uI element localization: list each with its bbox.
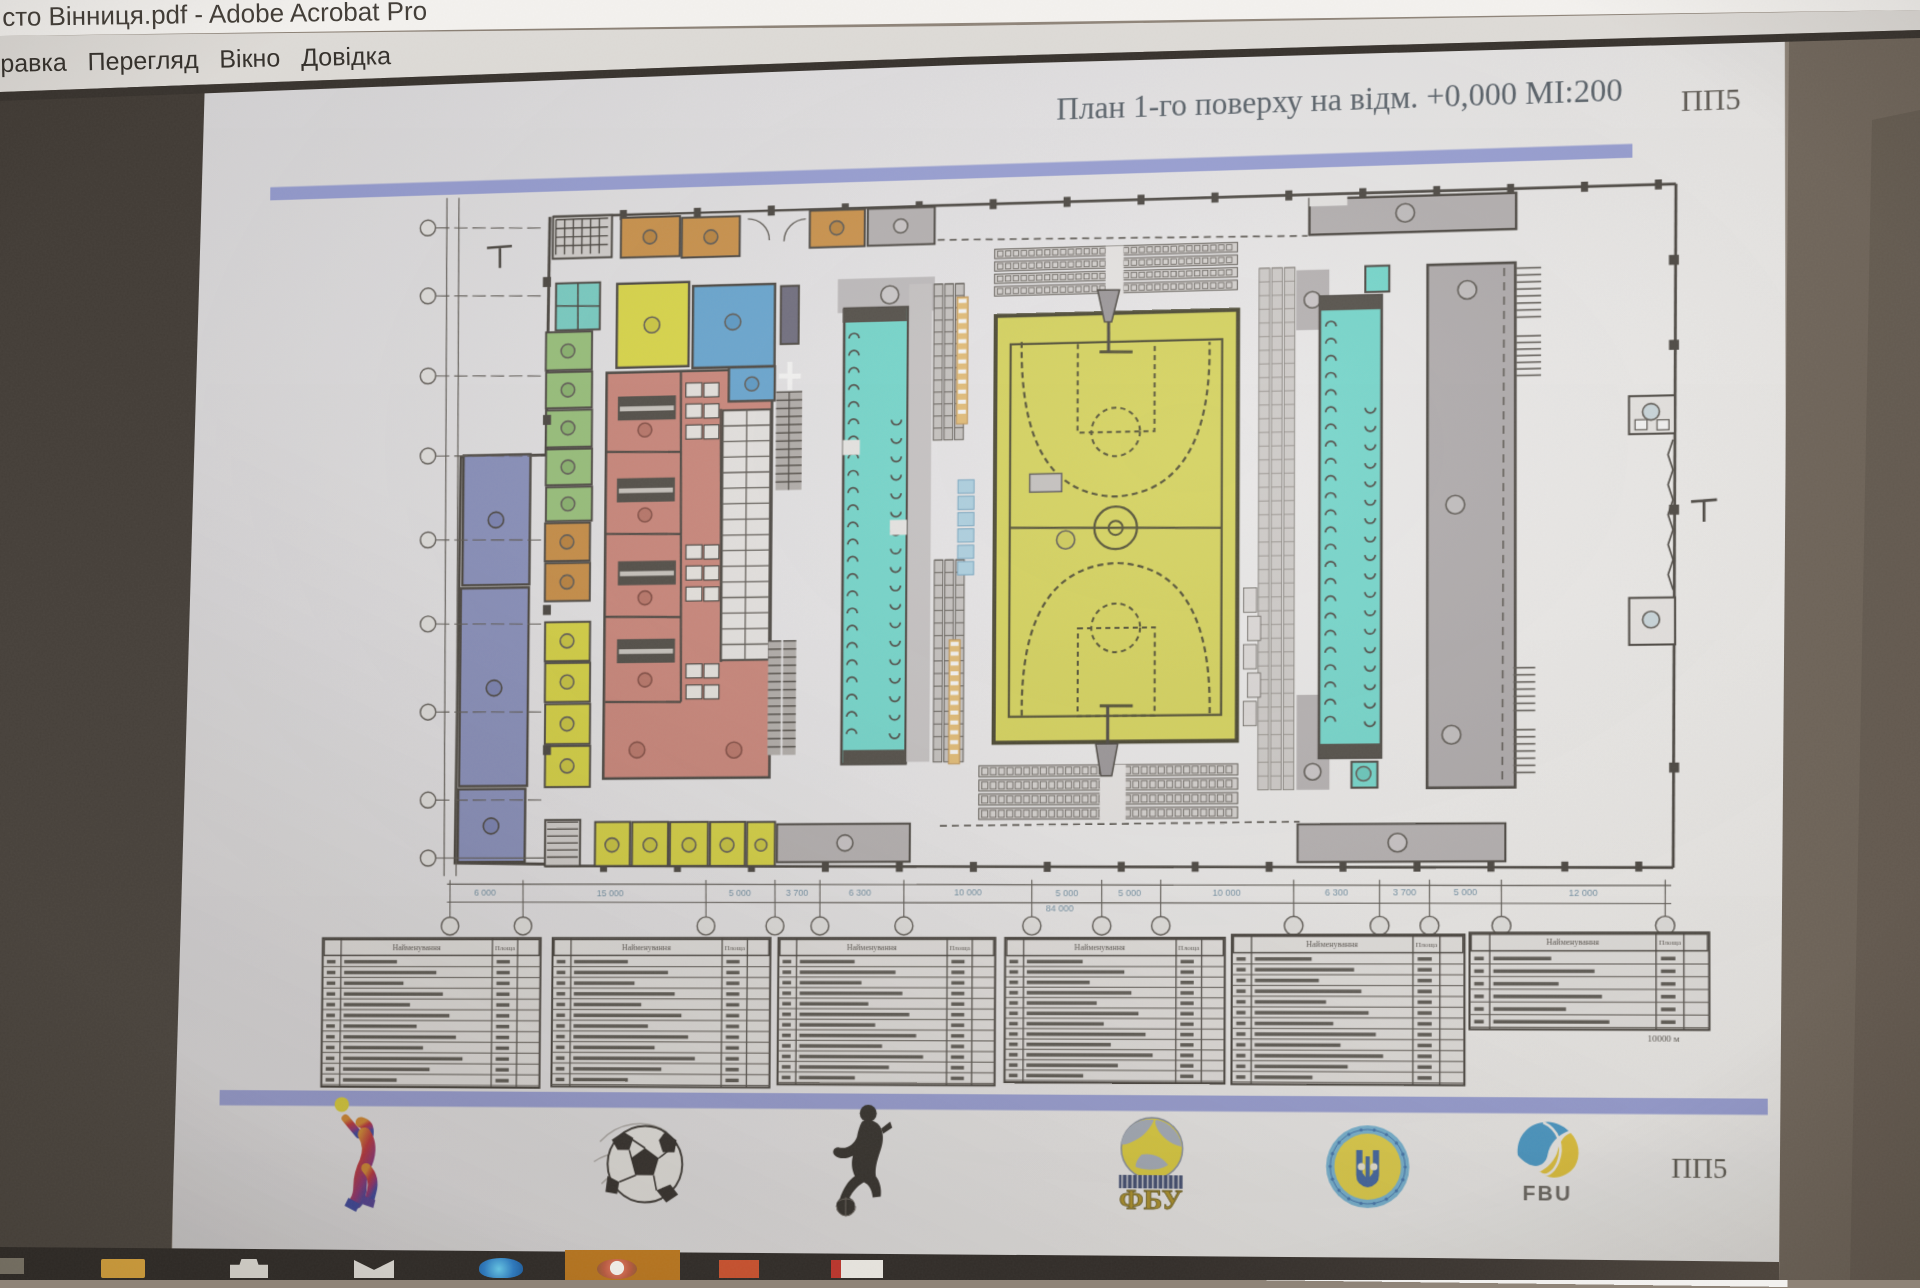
svg-text:Площа: Площа	[1178, 945, 1199, 953]
svg-text:15 000: 15 000	[597, 888, 624, 899]
svg-text:Найменування: Найменування	[847, 943, 897, 953]
svg-text:ПП5: ПП5	[1681, 83, 1741, 118]
svg-text:12 000: 12 000	[1569, 887, 1598, 898]
svg-text:Площа: Площа	[725, 945, 745, 952]
svg-text:3 700: 3 700	[1393, 887, 1417, 898]
svg-text:Площа: Площа	[949, 945, 970, 952]
svg-text:6 300: 6 300	[849, 887, 872, 898]
svg-text:Площа: Площа	[1416, 942, 1438, 950]
svg-text:Найменування: Найменування	[1074, 943, 1125, 953]
svg-text:ФБУ: ФБУ	[1119, 1183, 1183, 1216]
svg-text:6 300: 6 300	[1325, 887, 1349, 898]
svg-text:Площа: Площа	[495, 945, 515, 952]
svg-text:6 000: 6 000	[474, 888, 496, 899]
svg-text:План 1-го поверху на відм. +0,: План 1-го поверху на відм. +0,000 МІ:200	[1056, 73, 1622, 126]
svg-text:5 000: 5 000	[1118, 887, 1141, 898]
svg-text:84 000: 84 000	[1046, 903, 1074, 914]
svg-text:10 000: 10 000	[1213, 887, 1242, 898]
svg-text:Найменування: Найменування	[622, 943, 672, 953]
svg-text:10 000: 10 000	[954, 887, 982, 898]
svg-text:3 700: 3 700	[786, 887, 809, 898]
svg-text:Площа: Площа	[1659, 940, 1681, 948]
svg-text:Найменування: Найменування	[393, 943, 442, 952]
svg-text:5 000: 5 000	[1454, 887, 1478, 898]
svg-text:Найменування: Найменування	[1306, 939, 1358, 949]
svg-text:ПП5: ПП5	[1671, 1152, 1727, 1185]
svg-text:5 000: 5 000	[729, 887, 752, 898]
svg-text:FBU: FBU	[1523, 1183, 1573, 1207]
svg-text:10000 м: 10000 м	[1647, 1033, 1680, 1044]
svg-text:5 000: 5 000	[1055, 887, 1078, 898]
svg-text:Найменування: Найменування	[1546, 937, 1599, 947]
